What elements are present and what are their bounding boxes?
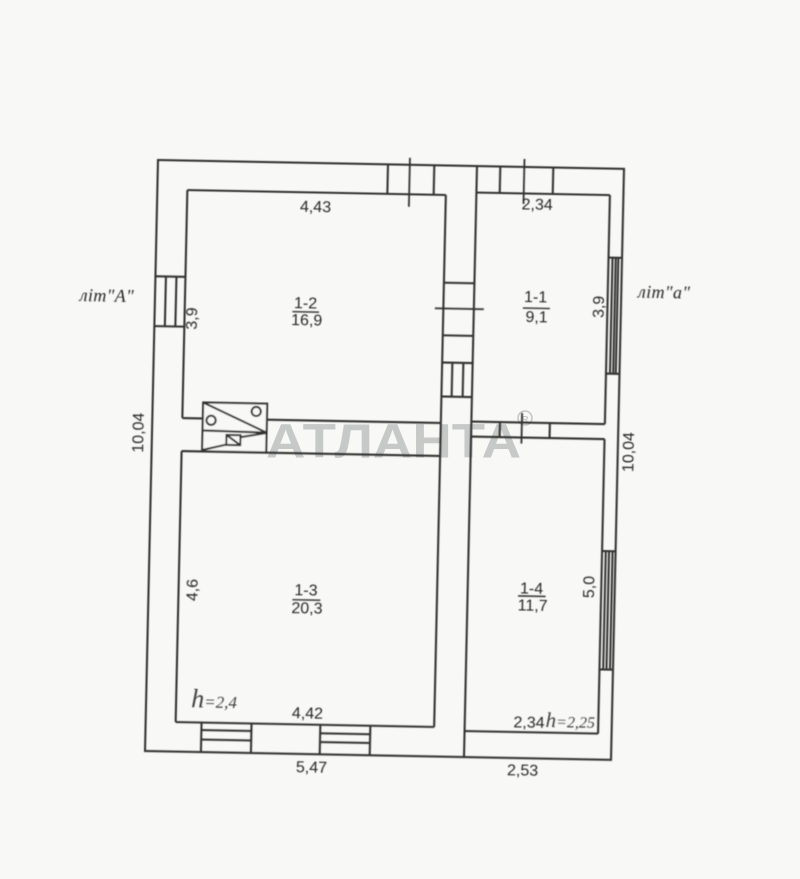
svg-text:4,6: 4,6 — [184, 579, 201, 602]
svg-text:4,43: 4,43 — [300, 199, 332, 217]
svg-text:1-3: 1-3 — [294, 582, 318, 599]
svg-text:2,34: 2,34 — [513, 714, 545, 732]
svg-text:9,1: 9,1 — [525, 309, 548, 326]
svg-text:1-4: 1-4 — [520, 580, 544, 597]
svg-text:АТЛАНТА: АТЛАНТА — [266, 416, 521, 469]
svg-text:16,9: 16,9 — [291, 312, 323, 330]
svg-text:20,3: 20,3 — [291, 600, 323, 618]
svg-text:літ"А": літ"А" — [78, 285, 134, 306]
svg-text:3,9: 3,9 — [591, 295, 608, 318]
svg-text:10,04: 10,04 — [620, 432, 638, 472]
svg-text:5,47: 5,47 — [296, 759, 328, 777]
svg-text:2,34: 2,34 — [521, 196, 553, 214]
svg-text:2,53: 2,53 — [507, 762, 539, 780]
svg-text:1-2: 1-2 — [294, 295, 318, 312]
svg-text:літ"а": літ"а" — [637, 281, 691, 302]
svg-text:11,7: 11,7 — [517, 597, 547, 615]
svg-text:3,9: 3,9 — [184, 307, 201, 330]
svg-text:1-1: 1-1 — [524, 289, 548, 306]
svg-text:4,42: 4,42 — [292, 705, 324, 723]
svg-text:10,04: 10,04 — [130, 412, 148, 452]
svg-text:5,0: 5,0 — [581, 576, 598, 599]
